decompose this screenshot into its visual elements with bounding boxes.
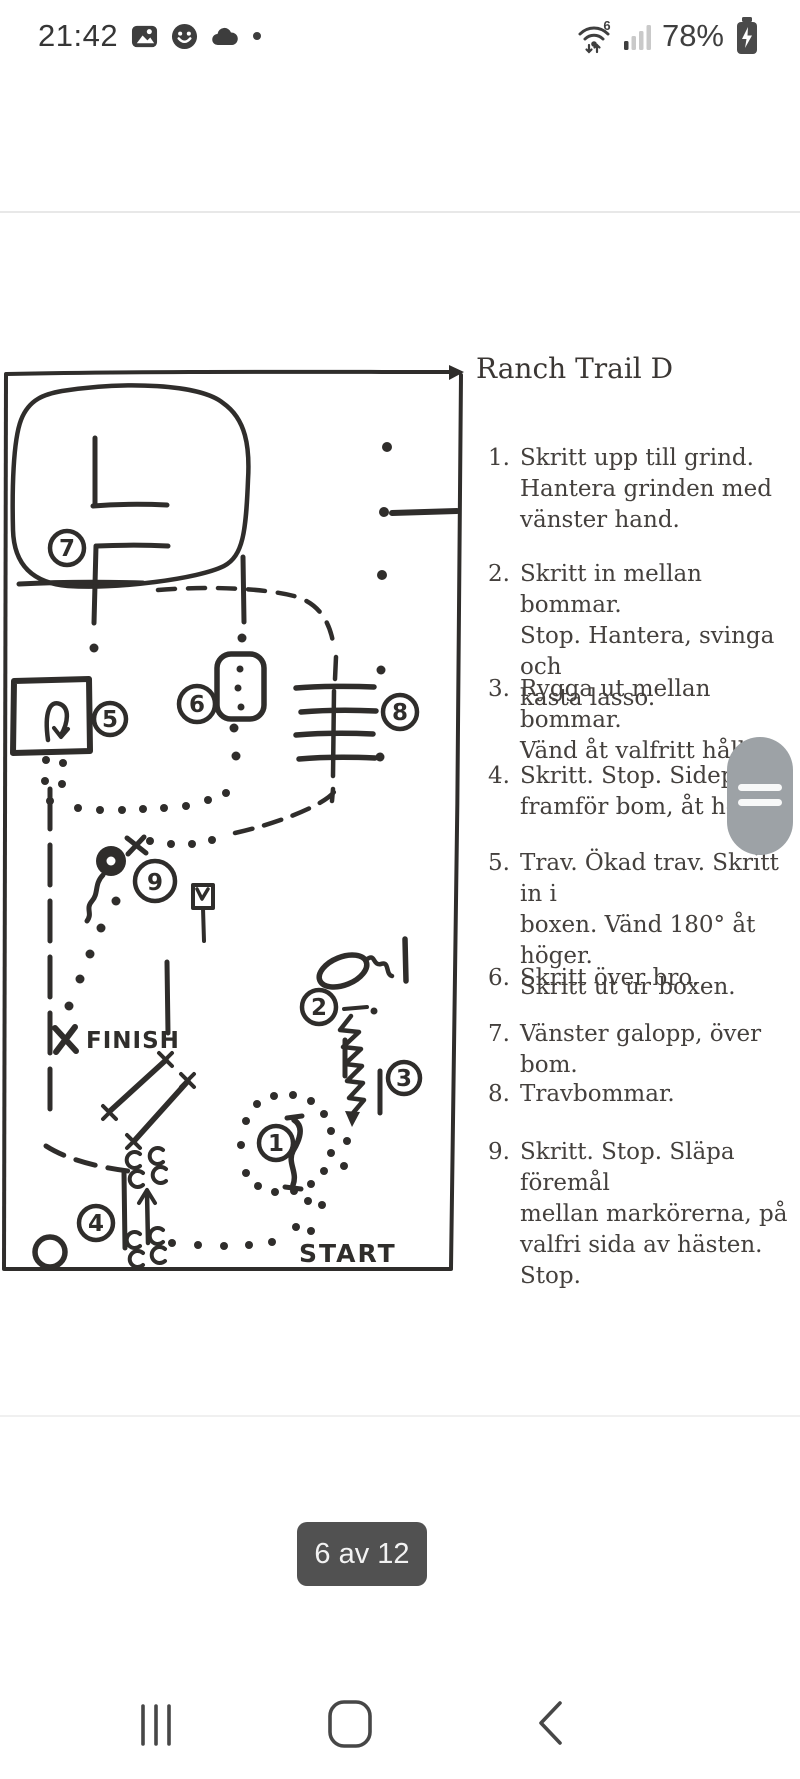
obstacle-4-sidepass: 4 [35,1146,166,1267]
obstacle-5-box: 5 [13,679,126,753]
obstacle-1-marker: 1 [268,1131,284,1157]
instruction-number: 2. [488,559,520,590]
pole-line [167,962,168,1033]
instruction-item: 6. Skritt över bro. [488,963,699,994]
page-indicator: 6 av 12 [297,1522,427,1586]
start-label: START [299,1239,397,1268]
instruction-item: 1. Skritt upp till grind. Hantera grinde… [488,443,772,536]
drag-handle-icon [738,799,782,806]
drag-handle-icon [738,784,782,791]
dotted-trail [41,756,230,814]
obstacle-9-marker: 9 [147,870,163,896]
obstacle-3-zigzag: 3 [340,1007,420,1127]
back-button[interactable] [536,1700,564,1749]
obstacle-3-marker: 3 [396,1066,412,1092]
obstacle-4-marker: 4 [88,1211,104,1237]
instruction-text: Skritt. Stop. Släpa föremål mellan markö… [520,1137,793,1292]
obstacle-8-marker: 8 [392,700,408,726]
arena-border [4,365,464,1269]
page-title: Ranch Trail D [476,352,673,385]
instruction-number: 3. [488,674,520,705]
instruction-text: Travbommar. [520,1079,675,1110]
instruction-number: 4. [488,761,520,792]
instruction-number: 8. [488,1079,520,1110]
home-icon [327,1699,373,1749]
instruction-number: 1. [488,443,520,474]
obstacle-7-loop: 7 [13,385,334,649]
back-icon [536,1700,564,1746]
crossed-poles [103,1053,194,1148]
instruction-number: 7. [488,1019,520,1050]
obstacle-1-gate: 1 START [168,1091,397,1268]
obstacle-5-marker: 5 [102,707,118,733]
finish-label: FINISH [86,1028,180,1054]
recents-button[interactable] [139,1704,173,1749]
instruction-item: 7. Vänster galopp, över bom. [488,1019,793,1081]
obstacle-2-marker: 2 [311,995,327,1021]
instruction-text: Skritt upp till grind. Hantera grinden m… [520,443,772,536]
recents-icon [139,1704,173,1746]
instruction-text: Skritt över bro. [520,963,699,994]
obstacle-6-marker: 6 [189,692,205,718]
obstacle-2-lasso: 2 [302,939,406,1024]
system-nav-bar [0,1690,800,1770]
content-divider-bottom [0,1415,800,1417]
obstacle-9-drag: 9 [65,792,335,1011]
gate-markers [377,442,457,580]
obstacle-6-bridge: 6 [90,634,265,761]
instruction-number: 5. [488,848,520,879]
instruction-item: 9. Skritt. Stop. Släpa föremål mellan ma… [488,1137,793,1292]
finish-marker: FINISH [55,1027,180,1054]
obstacle-8-trot-poles: 8 [296,657,417,801]
instruction-item: 8. Travbommar. [488,1079,675,1110]
home-button[interactable] [327,1699,373,1752]
instruction-text: Vänster galopp, över bom. [520,1019,793,1081]
instruction-number: 9. [488,1137,520,1168]
scroll-drag-handle[interactable] [727,737,793,855]
instruction-number: 6. [488,963,520,994]
obstacle-7-marker: 7 [59,536,75,562]
